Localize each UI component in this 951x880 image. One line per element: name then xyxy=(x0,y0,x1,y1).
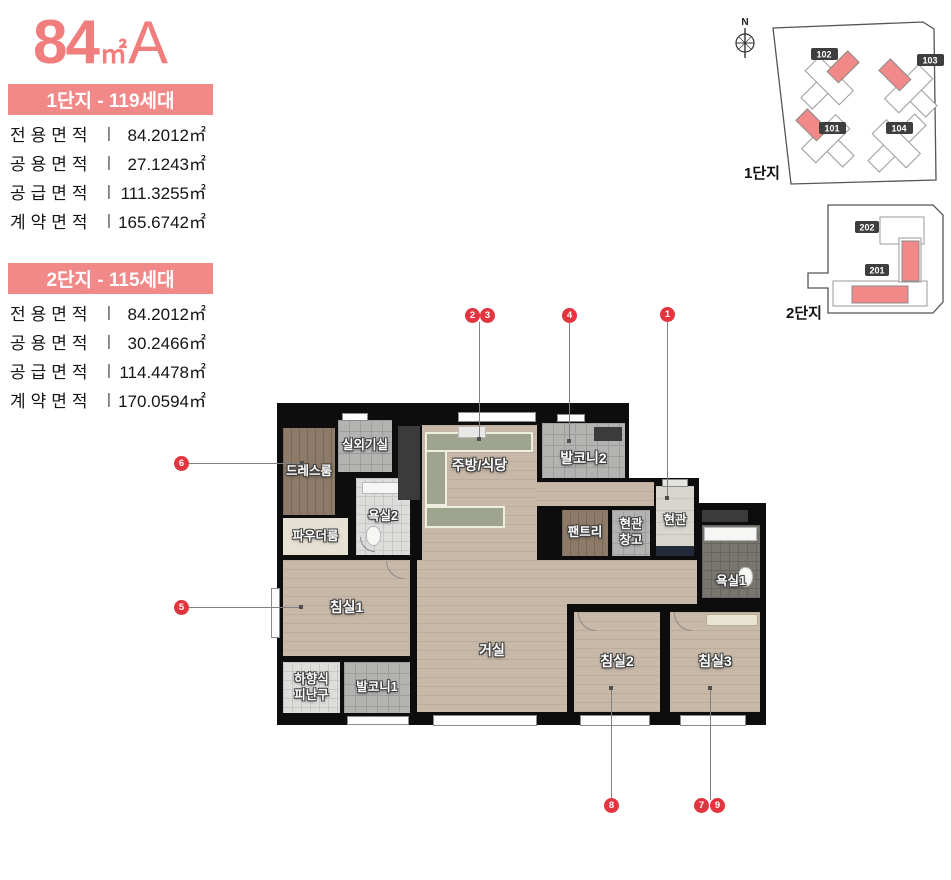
leader-line xyxy=(479,322,480,439)
complex1-area-table: 전용면적|84.2012㎡ 공용면적|27.1243㎡ 공급면적|111.325… xyxy=(10,119,206,235)
room-pantry: 팬트리 xyxy=(562,510,608,556)
leader-line xyxy=(189,463,302,464)
window xyxy=(458,412,536,422)
room-balcony1: 발코니1 xyxy=(344,662,410,713)
leader-line xyxy=(710,688,711,800)
complex1-banner: 1단지 - 119세대 xyxy=(8,84,213,115)
hallway xyxy=(537,482,654,506)
marker-3: 3 xyxy=(480,308,495,323)
table-row: 공급면적|114.4478㎡ xyxy=(10,356,206,385)
compass-n-label: N xyxy=(741,17,748,28)
room-label: 팬트리 xyxy=(568,525,603,541)
room-label: 발코니2 xyxy=(542,450,625,468)
leader-dot xyxy=(665,496,669,500)
room-powder: 파우더룸 xyxy=(283,518,348,555)
marker-4: 4 xyxy=(562,308,577,323)
room-label: 욕실1 xyxy=(702,574,760,590)
window xyxy=(342,413,368,421)
room-dress: 드레스룸 xyxy=(283,428,335,515)
cabinet xyxy=(594,427,622,441)
entry-mat xyxy=(656,546,694,556)
leader-dot xyxy=(708,686,712,690)
leader-line xyxy=(667,322,668,498)
site2-label: 2단지 xyxy=(786,302,822,323)
badge-102: 102 xyxy=(811,48,838,60)
marker-5: 5 xyxy=(174,600,189,615)
table-row: 공용면적|27.1243㎡ xyxy=(10,148,206,177)
room-label: 현관 xyxy=(619,517,642,533)
marker-6: 6 xyxy=(174,456,189,471)
room-label: 드레스룸 xyxy=(286,464,332,480)
room-label: 주방/식당 xyxy=(422,457,537,475)
room-kitchen: 주방/식당 xyxy=(422,425,537,560)
badge-101: 101 xyxy=(819,122,846,134)
room-label: 침실3 xyxy=(698,653,732,671)
room-label: 하향식 xyxy=(294,672,329,688)
leader-line xyxy=(569,322,570,441)
room-living: 거실 xyxy=(417,560,567,712)
table-row: 계약면적|165.6742㎡ xyxy=(10,206,206,235)
kitchen-island xyxy=(425,506,505,528)
complex2-banner: 2단지 - 115세대 xyxy=(8,263,213,294)
window xyxy=(433,715,537,726)
badge-201: 201 xyxy=(865,264,889,276)
room-label: 거실 xyxy=(417,642,567,660)
room-label: 현관 xyxy=(663,513,686,529)
marker-9: 9 xyxy=(710,798,725,813)
corridor xyxy=(567,560,697,604)
leader-dot xyxy=(609,686,613,690)
leader-dot xyxy=(477,437,481,441)
window xyxy=(347,716,409,725)
room-label: 피난구 xyxy=(294,688,329,704)
window xyxy=(580,715,650,726)
title-size: 84 xyxy=(33,12,98,74)
leader-line xyxy=(189,607,301,608)
badge-104: 104 xyxy=(886,122,913,134)
complex2-area-table: 전용면적|84.2012㎡ 공용면적|30.2466㎡ 공급면적|114.447… xyxy=(10,298,206,414)
page-title: 84 ㎡ A xyxy=(33,12,168,74)
marker-8: 8 xyxy=(604,798,619,813)
room-label: 침실2 xyxy=(600,653,634,671)
window xyxy=(557,414,585,422)
svg-text:104: 104 xyxy=(891,124,906,134)
unit-highlight xyxy=(902,241,919,281)
compass-icon: N xyxy=(736,17,754,58)
leader-dot xyxy=(299,605,303,609)
window xyxy=(271,588,280,638)
room-escape-hatch: 하향식 피난구 xyxy=(283,662,340,713)
marker-2: 2 xyxy=(465,308,480,323)
svg-text:102: 102 xyxy=(816,50,831,60)
closet xyxy=(706,614,758,626)
stove xyxy=(458,426,486,438)
sink-counter xyxy=(704,527,757,541)
site1-label: 1단지 xyxy=(744,162,780,183)
marker-1: 1 xyxy=(660,307,675,322)
title-variant: A xyxy=(128,13,168,73)
badge-103: 103 xyxy=(917,54,944,66)
svg-text:202: 202 xyxy=(859,223,874,233)
table-row: 전용면적|84.2012㎡ xyxy=(10,119,206,148)
leader-dot xyxy=(567,439,571,443)
sink-counter xyxy=(362,482,402,494)
room-balcony2: 발코니2 xyxy=(542,423,625,478)
room-label: 욕실2 xyxy=(368,509,398,525)
room-bath1: 욕실1 xyxy=(702,525,760,598)
table-row: 계약면적|170.0594㎡ xyxy=(10,385,206,414)
room-label: 발코니1 xyxy=(356,680,397,696)
room-label: 실외기실 xyxy=(342,438,388,454)
entrance-door xyxy=(662,479,688,487)
room-label: 침실1 xyxy=(330,599,364,617)
unit-highlight xyxy=(852,286,908,303)
badge-202: 202 xyxy=(855,221,879,233)
svg-text:103: 103 xyxy=(922,56,937,66)
room-label: 파우더룸 xyxy=(292,529,338,545)
table-row: 공용면적|30.2466㎡ xyxy=(10,327,206,356)
table-row: 전용면적|84.2012㎡ xyxy=(10,298,206,327)
marker-7: 7 xyxy=(694,798,709,813)
svg-text:101: 101 xyxy=(824,124,839,134)
svg-text:201: 201 xyxy=(869,266,884,276)
tall-cabinet xyxy=(398,426,420,500)
table-row: 공급면적|111.3255㎡ xyxy=(10,177,206,206)
cabinet xyxy=(702,510,748,522)
leader-dot xyxy=(300,461,304,465)
title-unit: ㎡ xyxy=(100,32,127,71)
room-label: 창고 xyxy=(619,533,642,549)
room-outdoor-unit: 실외기실 xyxy=(338,420,392,472)
room-entrance: 현관 xyxy=(656,486,694,556)
leader-line xyxy=(611,688,612,800)
floor-plan: 실외기실 드레스룸 파우더룸 욕실2 주방/식당 발코니2 팬트리 현관 창고 … xyxy=(270,398,770,732)
window xyxy=(680,715,746,726)
room-entry-storage: 현관 창고 xyxy=(612,510,650,556)
